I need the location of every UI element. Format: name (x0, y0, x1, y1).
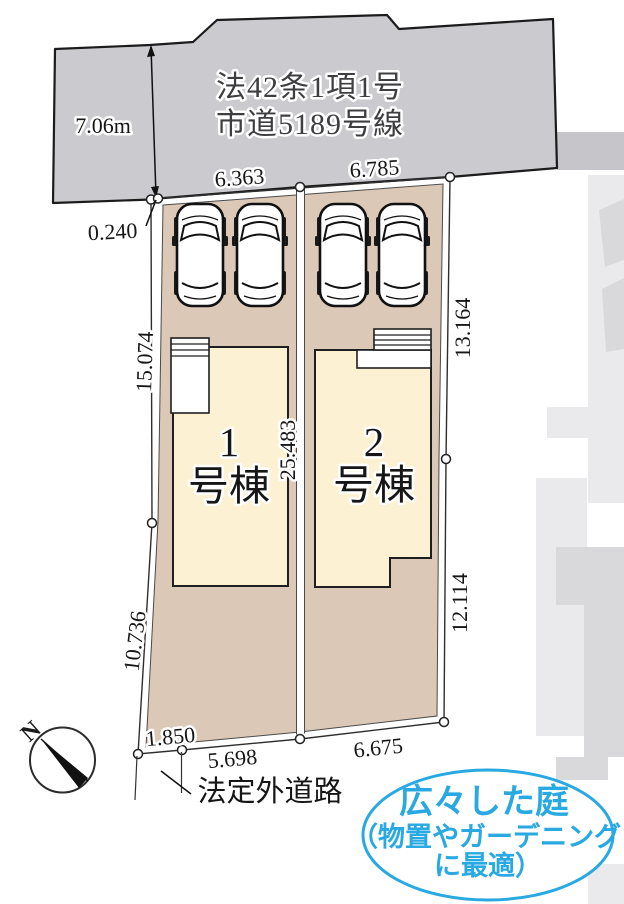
dim-frontage-right: 6.785 (349, 154, 400, 182)
bottom-road-leaders (135, 752, 191, 800)
callout-line1: 広々した庭 (399, 782, 569, 821)
dim-left-lower: 10.736 (118, 610, 150, 673)
road-width-label: 7.06m (75, 113, 131, 138)
dim-corner-offset: 0.240 (87, 218, 138, 246)
dim-bottom-left: 5.698 (207, 744, 258, 773)
site-plan-page: 法42条1項1号 市道5189号線 7.06m 1 号棟 2 (0, 0, 624, 904)
dim-bottom-right: 6.675 (352, 733, 404, 763)
callout-line3: に最適） (434, 850, 542, 881)
site-plan-drawing: 法42条1項1号 市道5189号線 7.06m 1 号棟 2 (0, 0, 624, 904)
car-icon (315, 204, 371, 306)
building-2-label: 号棟 (333, 462, 415, 508)
garden-callout: 広々した庭 （物置やガーデニング に最適） (351, 770, 621, 900)
car-icon (232, 204, 288, 306)
callout-line2: （物置やガーデニング (351, 821, 621, 852)
building-2: 2 号棟 (315, 329, 431, 587)
building-2-number: 2 (364, 419, 385, 465)
building-1: 1 号棟 (171, 338, 288, 586)
car-icon (374, 204, 430, 306)
dim-right-lower: 12.114 (447, 573, 472, 633)
dim-bottom-small: 1.850 (145, 722, 196, 751)
dim-center: 25.483 (275, 420, 300, 481)
building-1-label: 号棟 (188, 463, 270, 509)
road-name-line2: 市道5189号線 (216, 108, 404, 141)
road-name-line1: 法42条1項1号 (216, 71, 404, 104)
building-1-number: 1 (219, 419, 240, 465)
car-icon (172, 204, 228, 306)
dim-frontage-left: 6.363 (214, 163, 265, 191)
dim-left-upper: 15.074 (131, 331, 158, 392)
dim-right-upper: 13.164 (450, 298, 475, 359)
compass: N (16, 716, 95, 793)
bottom-road-label: 法定外道路 (197, 775, 342, 808)
